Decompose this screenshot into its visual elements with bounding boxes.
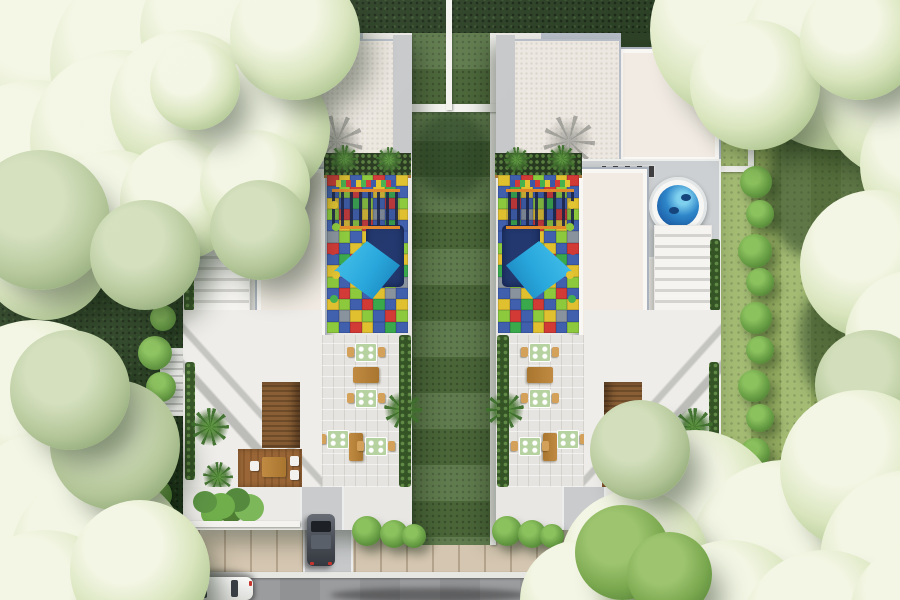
play-tile bbox=[556, 243, 568, 254]
villa-left bbox=[183, 33, 412, 530]
white-pergola bbox=[192, 225, 250, 319]
side-walkway bbox=[393, 35, 412, 161]
play-tile bbox=[362, 310, 374, 321]
gray-car-driveway bbox=[307, 514, 335, 566]
play-tile bbox=[385, 310, 397, 321]
climbing-frame bbox=[332, 189, 400, 229]
spa-water bbox=[205, 185, 247, 227]
play-tile bbox=[339, 310, 351, 321]
play-tile bbox=[567, 288, 579, 299]
play-tile bbox=[385, 288, 397, 299]
east-gate-wall bbox=[721, 166, 754, 172]
play-tile bbox=[339, 299, 351, 310]
pergola-deck bbox=[604, 382, 642, 448]
play-tile bbox=[544, 299, 556, 310]
east-boundary-wall bbox=[748, 0, 754, 172]
car-taillight bbox=[310, 562, 314, 565]
play-tile bbox=[567, 254, 579, 265]
play-tile bbox=[510, 288, 522, 299]
play-tile bbox=[498, 299, 510, 310]
play-tile bbox=[510, 310, 522, 321]
play-tile bbox=[327, 243, 339, 254]
east-wing-terrace bbox=[584, 310, 721, 487]
play-tile bbox=[327, 231, 339, 242]
play-tile bbox=[521, 322, 533, 333]
play-tile bbox=[533, 299, 545, 310]
planter-strip bbox=[399, 335, 411, 487]
car-windshield bbox=[197, 579, 207, 598]
hedge-gap bbox=[621, 33, 721, 48]
front-wall bbox=[606, 521, 721, 527]
play-tile bbox=[327, 299, 339, 310]
west-wing-terrace bbox=[183, 310, 322, 487]
wood-table bbox=[527, 367, 553, 383]
car-roof bbox=[311, 535, 331, 549]
dining-table bbox=[355, 389, 377, 408]
play-tile bbox=[350, 231, 362, 242]
tree-shadow-road bbox=[690, 574, 900, 600]
play-tile bbox=[339, 231, 351, 242]
play-tile bbox=[350, 322, 362, 333]
play-tile bbox=[373, 310, 385, 321]
dining-terrace bbox=[496, 335, 584, 487]
white-car bbox=[183, 577, 253, 600]
playground bbox=[495, 153, 582, 335]
dining-table bbox=[519, 437, 541, 456]
front-court bbox=[566, 487, 721, 530]
lounge-chair bbox=[250, 461, 259, 471]
entry-path bbox=[562, 487, 606, 530]
deck-table bbox=[262, 457, 286, 477]
play-tile bbox=[544, 310, 556, 321]
lounge-chair bbox=[290, 456, 299, 466]
deck-table bbox=[618, 457, 642, 477]
palm-tree bbox=[376, 147, 402, 173]
dining-table bbox=[355, 343, 377, 362]
lounge-chair bbox=[605, 470, 614, 480]
play-tile bbox=[556, 288, 568, 299]
dining-table bbox=[529, 389, 551, 408]
play-toys bbox=[568, 201, 576, 209]
play-tile bbox=[533, 310, 545, 321]
palm-tree bbox=[548, 145, 576, 173]
play-tile bbox=[327, 310, 339, 321]
central-divider-wall bbox=[446, 0, 452, 110]
wood-deck bbox=[602, 449, 666, 487]
dining-terrace bbox=[322, 335, 412, 487]
play-tile bbox=[567, 277, 579, 288]
pergola-deck bbox=[262, 382, 300, 448]
car-shadow bbox=[330, 588, 530, 600]
play-tile bbox=[533, 322, 545, 333]
play-tile bbox=[498, 310, 510, 321]
play-tile bbox=[373, 299, 385, 310]
playground bbox=[324, 153, 411, 335]
play-tile bbox=[373, 322, 385, 333]
play-tile bbox=[556, 322, 568, 333]
play-toys bbox=[330, 201, 338, 209]
villa-right bbox=[496, 33, 721, 530]
lounge-chair bbox=[605, 456, 614, 466]
palm-tree bbox=[191, 408, 229, 446]
play-tile bbox=[350, 299, 362, 310]
aerial-site-render bbox=[0, 0, 900, 600]
play-tile bbox=[327, 322, 339, 333]
west-boundary-wall bbox=[143, 0, 149, 168]
outdoor-stairs bbox=[160, 348, 184, 416]
front-hedge bbox=[193, 491, 217, 513]
lounge-chair bbox=[290, 470, 299, 480]
play-tile bbox=[567, 243, 579, 254]
play-tile bbox=[544, 322, 556, 333]
lounge-chair bbox=[645, 461, 654, 471]
planter-strip bbox=[710, 239, 720, 311]
spa-water bbox=[657, 185, 699, 227]
play-tile bbox=[396, 310, 408, 321]
play-tile bbox=[498, 288, 510, 299]
play-tile bbox=[385, 322, 397, 333]
play-tile bbox=[350, 310, 362, 321]
hedge-top-right bbox=[721, 0, 791, 52]
play-tile bbox=[396, 175, 408, 186]
dining-table bbox=[557, 430, 579, 449]
play-tile bbox=[396, 322, 408, 333]
roof-section-a bbox=[183, 47, 287, 163]
play-tile bbox=[396, 288, 408, 299]
planter-strip bbox=[497, 335, 509, 487]
play-tile bbox=[510, 299, 522, 310]
dining-table bbox=[529, 343, 551, 362]
play-tile bbox=[521, 310, 533, 321]
palm-tree bbox=[675, 408, 713, 446]
front-wall bbox=[183, 521, 300, 527]
play-tile bbox=[510, 322, 522, 333]
palm-tree bbox=[504, 147, 530, 173]
play-tile bbox=[567, 231, 579, 242]
play-tile bbox=[327, 288, 339, 299]
play-tile bbox=[556, 299, 568, 310]
planter-strip bbox=[184, 239, 194, 311]
play-tile bbox=[567, 310, 579, 321]
west-gate-wall bbox=[143, 162, 187, 168]
car-taillight bbox=[328, 562, 332, 565]
car-taillight bbox=[249, 581, 252, 586]
white-pergola bbox=[654, 225, 712, 319]
play-tile bbox=[339, 288, 351, 299]
wood-deck bbox=[238, 449, 302, 487]
front-hedge bbox=[687, 491, 711, 513]
play-tile bbox=[362, 299, 374, 310]
play-tile bbox=[556, 231, 568, 242]
palm-tree bbox=[330, 145, 358, 173]
play-tile bbox=[567, 299, 579, 310]
play-tile bbox=[521, 299, 533, 310]
play-tile bbox=[327, 254, 339, 265]
play-tile bbox=[498, 175, 510, 186]
car-windshield bbox=[311, 521, 331, 532]
play-tile bbox=[556, 310, 568, 321]
play-tile bbox=[498, 322, 510, 333]
play-tile bbox=[327, 277, 339, 288]
wood-table bbox=[353, 367, 379, 383]
side-walkway bbox=[496, 35, 515, 161]
climbing-frame bbox=[506, 189, 574, 229]
play-tile bbox=[544, 231, 556, 242]
car-rear-window bbox=[231, 580, 238, 597]
play-tile bbox=[362, 322, 374, 333]
play-tile bbox=[339, 243, 351, 254]
play-tile bbox=[385, 299, 397, 310]
tree-shadow-central bbox=[416, 112, 488, 197]
dining-table bbox=[365, 437, 387, 456]
play-tile bbox=[567, 322, 579, 333]
roof-section-a bbox=[617, 47, 721, 163]
play-tile bbox=[396, 299, 408, 310]
dining-table bbox=[327, 430, 349, 449]
hedge-gap bbox=[183, 33, 283, 48]
play-tile bbox=[339, 322, 351, 333]
